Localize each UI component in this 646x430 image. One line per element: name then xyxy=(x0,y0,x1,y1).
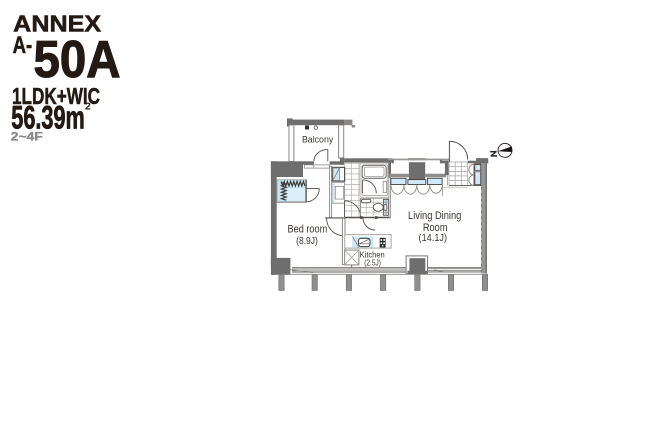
svg-text:(14.1J): (14.1J) xyxy=(419,232,448,244)
svg-text:(2.5J): (2.5J) xyxy=(364,257,381,267)
svg-text:2~4F: 2~4F xyxy=(11,130,43,144)
svg-text:Balcony: Balcony xyxy=(302,134,334,144)
svg-text:Living Dining: Living Dining xyxy=(408,210,461,222)
svg-text:50A: 50A xyxy=(34,30,121,88)
svg-text:(8.9J): (8.9J) xyxy=(296,236,318,247)
svg-text:Bed room: Bed room xyxy=(288,224,328,236)
svg-text:2: 2 xyxy=(85,100,91,112)
svg-text:A-: A- xyxy=(13,32,33,59)
